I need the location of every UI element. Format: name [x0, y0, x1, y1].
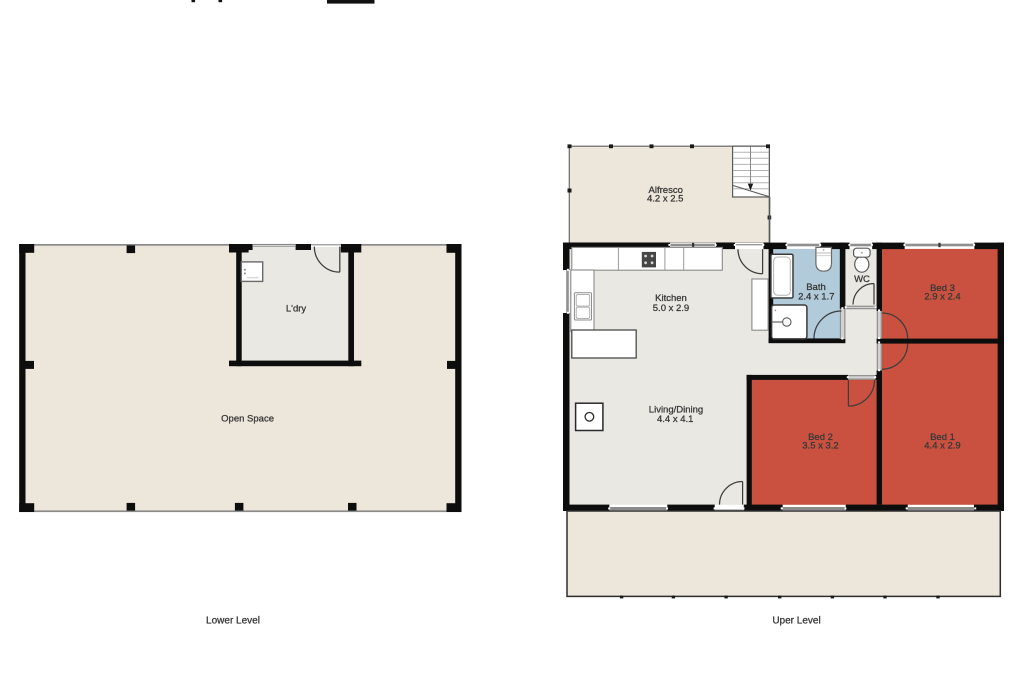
svg-text:2.4 x 1.7: 2.4 x 1.7: [798, 292, 834, 303]
svg-text:Open Space: Open Space: [221, 414, 274, 425]
svg-text:4.4 x 4.1: 4.4 x 4.1: [657, 414, 693, 425]
svg-text:4.2 x 2.5: 4.2 x 2.5: [647, 193, 683, 204]
svg-text:2.9 x 2.4: 2.9 x 2.4: [924, 292, 960, 303]
svg-text:L'dry: L'dry: [286, 303, 307, 314]
svg-text:Uper Level: Uper Level: [772, 615, 820, 626]
svg-text:Lower Level: Lower Level: [206, 615, 260, 626]
svg-text:4.4 x 2.9: 4.4 x 2.9: [924, 441, 960, 452]
svg-text:WC: WC: [854, 274, 870, 285]
svg-text:5.0 x 2.9: 5.0 x 2.9: [653, 303, 689, 314]
svg-text:3.5 x 3.2: 3.5 x 3.2: [802, 441, 838, 452]
